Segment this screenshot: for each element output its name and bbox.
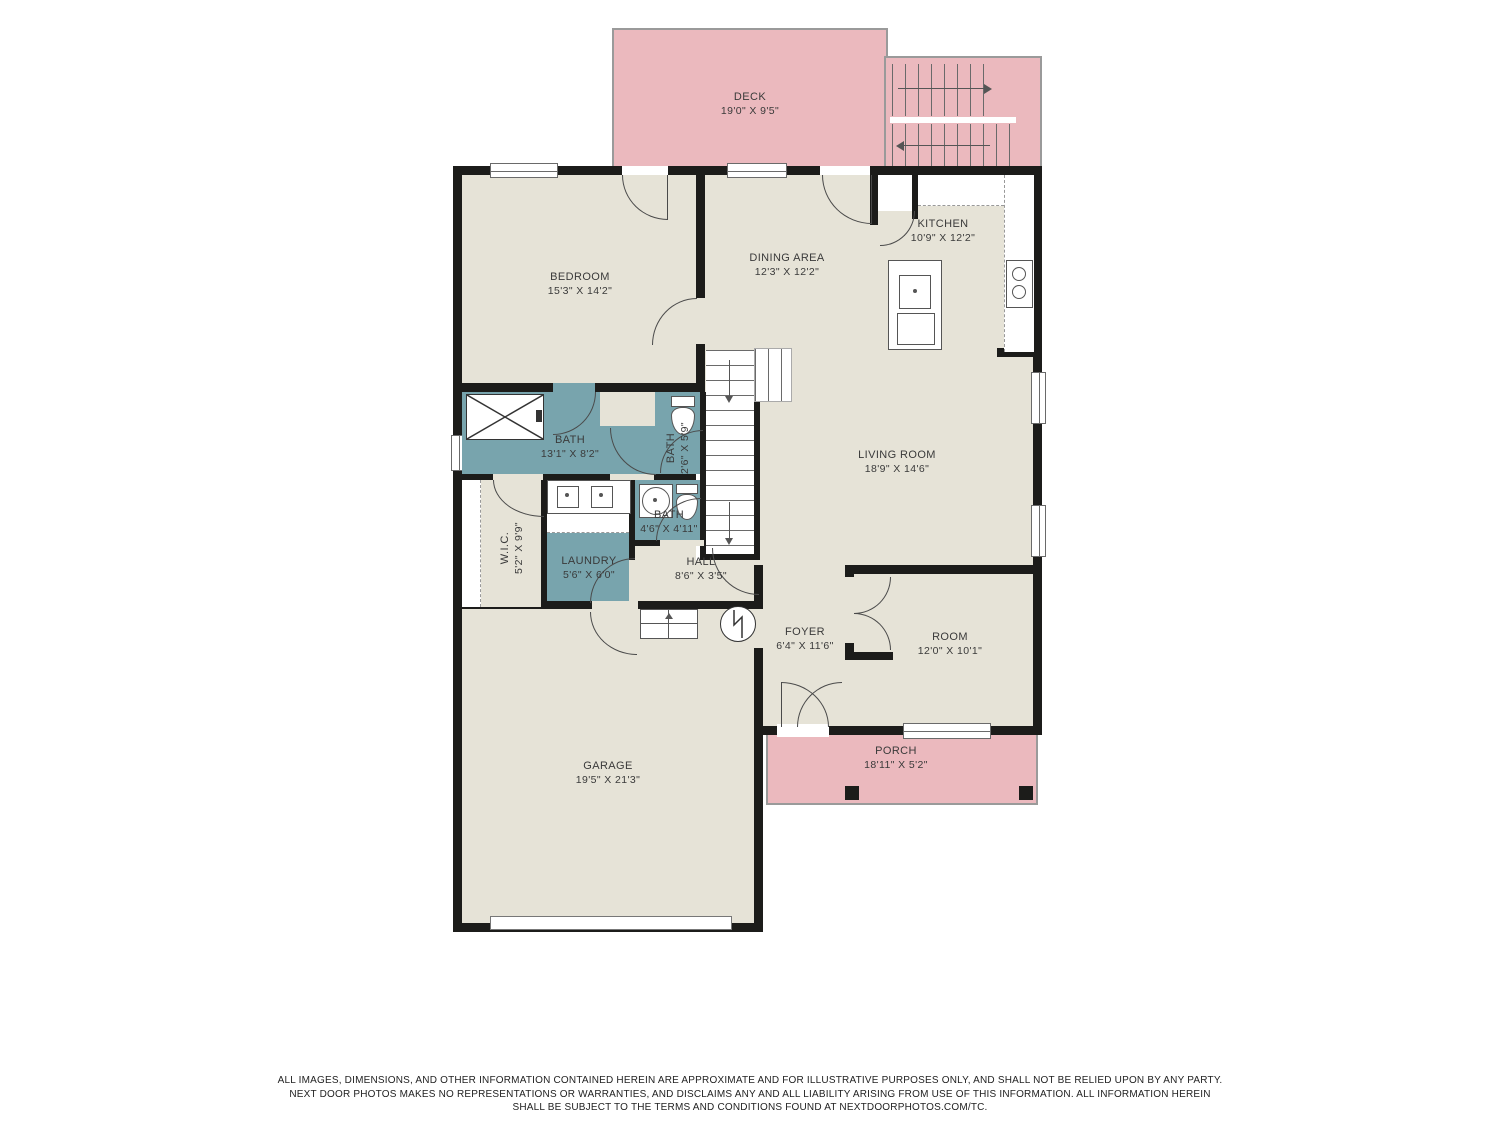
disclaimer-text: ALL IMAGES, DIMENSIONS, AND OTHER INFORM… — [0, 1074, 1500, 1115]
toilet-tank-icon — [671, 396, 695, 407]
arrow-left-icon — [896, 141, 904, 151]
deck-door-opening — [622, 166, 668, 175]
deck-stairs-upper-flight — [892, 64, 992, 116]
window — [1031, 505, 1046, 557]
dishwasher-icon — [897, 313, 935, 345]
toilet-tank-icon — [676, 484, 698, 494]
stair-direction-line — [904, 145, 990, 146]
room-label-kitchen: KITCHEN 10'9" X 12'2" — [911, 217, 976, 245]
sink-icon — [591, 486, 613, 508]
deck-door-opening — [820, 166, 870, 175]
room-label-laundry: LAUNDRY 5'6" X 6'0" — [561, 554, 616, 582]
room-label-room: ROOM 12'0" X 10'1" — [918, 630, 983, 658]
room-label-garage: GARAGE 19'5" X 21'3" — [576, 759, 641, 787]
kitchen-counter-top — [918, 175, 1004, 206]
arrow-up-icon — [665, 613, 673, 619]
faucet-icon — [913, 289, 917, 293]
burner-icon — [1012, 285, 1026, 299]
stair-direction-line — [729, 360, 730, 396]
wic-shelf — [462, 480, 481, 607]
doorway-gap — [696, 298, 705, 344]
room-label-bath-small: BATH 2'6" X 5'9" — [664, 422, 692, 474]
laundry-counter — [547, 514, 629, 533]
shower-valve-icon — [536, 410, 542, 422]
wall — [754, 648, 763, 726]
window — [490, 163, 558, 178]
pantry-closet — [878, 175, 912, 211]
faucet-icon — [565, 493, 569, 497]
stairs-landing — [754, 348, 792, 402]
window — [903, 723, 991, 739]
room-label-living: LIVING ROOM 18'9" X 14'6" — [858, 448, 936, 476]
wall — [696, 166, 705, 392]
room-label-bath-main: BATH 13'1" X 8'2" — [541, 433, 599, 461]
room-label-bath-half: BATH 4'6" X 4'11" — [640, 508, 698, 536]
room-label-foyer: FOYER 6'4" X 11'6" — [776, 625, 834, 653]
wall — [754, 395, 760, 560]
shower-x-icon — [467, 395, 543, 439]
burner-icon — [1012, 267, 1026, 281]
stove-icon — [1006, 260, 1033, 308]
disclaimer-line: ALL IMAGES, DIMENSIONS, AND OTHER INFORM… — [0, 1074, 1500, 1088]
shower — [466, 394, 544, 440]
garage-door — [490, 916, 732, 930]
wall — [453, 166, 462, 932]
wall — [845, 652, 893, 660]
porch-post — [1019, 786, 1033, 800]
arrow-down-icon — [725, 538, 733, 545]
garage-entry-steps — [640, 609, 698, 639]
deck-stairs-lower-flight — [892, 124, 1010, 168]
vanity-double-sink — [547, 480, 631, 514]
interior-stairs — [706, 350, 754, 554]
room-label-deck: DECK 19'0" X 9'5" — [721, 90, 779, 118]
utility-furnace-icon — [720, 606, 756, 642]
faucet-icon — [653, 498, 657, 502]
doorway-gap — [553, 383, 595, 392]
room-label-wic: W.I.C. 5'2" X 9'9" — [498, 522, 526, 574]
kitchen-island — [888, 260, 942, 350]
zigzag-icon — [721, 607, 755, 641]
step-line — [641, 623, 697, 624]
room-label-hall: HALL 8'6" X 3'5" — [675, 555, 727, 583]
wall — [845, 565, 854, 577]
room-label-bedroom: BEDROOM 15'3" X 14'2" — [548, 270, 613, 298]
arrow-down-icon — [725, 396, 733, 403]
sink-icon — [557, 486, 579, 508]
floor-plan: DECK 19'0" X 9'5" PORCH 18'11" X 5'2" — [0, 0, 1500, 1125]
window — [727, 163, 787, 178]
stair-direction-line — [729, 502, 730, 538]
linen-closet — [600, 392, 655, 426]
stair-direction-line — [898, 88, 984, 89]
disclaimer-line: SHALL BE SUBJECT TO THE TERMS AND CONDIT… — [0, 1101, 1500, 1115]
porch-post — [845, 786, 859, 800]
wall — [1033, 565, 1042, 735]
wall — [845, 565, 1042, 574]
deck-stairs-landing-gap — [890, 117, 1016, 123]
deck-stairs — [884, 56, 1042, 174]
faucet-icon — [599, 493, 603, 497]
disclaimer-line: NEXT DOOR PHOTOS MAKES NO REPRESENTATION… — [0, 1088, 1500, 1102]
room-label-porch: PORCH 18'11" X 5'2" — [864, 744, 928, 772]
arrow-right-icon — [984, 84, 992, 94]
window — [1031, 372, 1046, 424]
room-label-dining: DINING AREA 12'3" X 12'2" — [749, 251, 824, 279]
